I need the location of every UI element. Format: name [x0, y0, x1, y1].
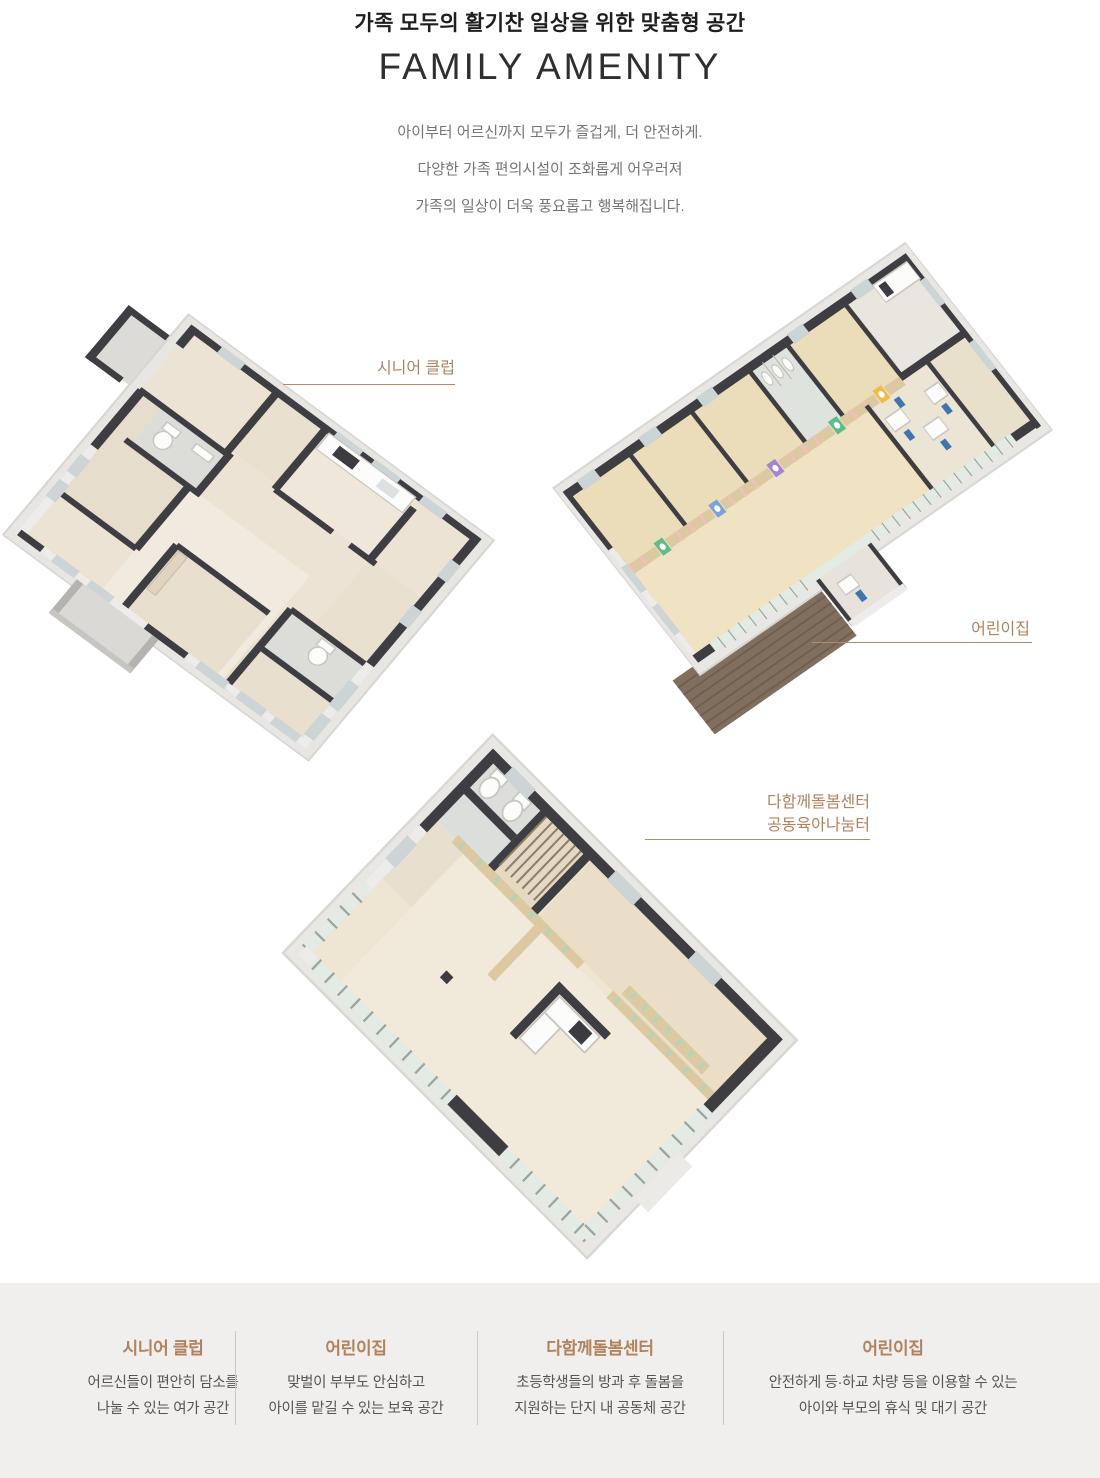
callout-daycare: 어린이집: [830, 618, 1030, 641]
footer-title: 어린이집: [718, 1339, 1068, 1359]
callout-label: 시니어 클럽: [255, 357, 455, 380]
family-amenity-page: 가족 모두의 활기찬 일상을 위한 맞춤형 공간 FAMILY AMENITY …: [0, 0, 1100, 1478]
footer-col-daycare-waiting: 어린이집 안전하게 등·하교 차량 등을 이용할 수 있는 아이와 부모의 휴식…: [718, 1283, 1068, 1478]
footer-desc-line: 맞벌이 부부도 안심하고: [235, 1370, 477, 1396]
footer-title: 다함께돌봄센터: [477, 1339, 723, 1359]
footer-col-care-center: 다함께돌봄센터 초등학생들의 방과 후 돌봄을 지원하는 단지 내 공동체 공간: [477, 1283, 723, 1478]
footer-desc: 초등학생들의 방과 후 돌봄을 지원하는 단지 내 공동체 공간: [477, 1370, 723, 1422]
footer-title: 어린이집: [235, 1339, 477, 1359]
footer-desc-line: 안전하게 등·하교 차량 등을 이용할 수 있는: [718, 1370, 1068, 1396]
floorplan-daycare: [533, 243, 1088, 734]
callout-line-senior-club: [283, 384, 455, 385]
callout-line-care-center: [645, 839, 870, 840]
footer-desc-line: 아이와 부모의 휴식 및 대기 공간: [718, 1396, 1068, 1422]
footer-col-daycare: 어린이집 맞벌이 부부도 안심하고 아이를 맡길 수 있는 보육 공간: [235, 1283, 477, 1478]
callout-line-daycare: [812, 642, 1032, 643]
footer-desc-line: 아이를 맡길 수 있는 보육 공간: [235, 1396, 477, 1422]
footer-desc: 안전하게 등·하교 차량 등을 이용할 수 있는 아이와 부모의 휴식 및 대기…: [718, 1370, 1068, 1422]
footer-desc-line: 초등학생들의 방과 후 돌봄을: [477, 1370, 723, 1396]
callout-care-center: 다함께돌봄센터 공동육아나눔터: [670, 791, 870, 837]
footer-desc-line: 지원하는 단지 내 공동체 공간: [477, 1396, 723, 1422]
floorplans-section: 시니어 클럽 어린이집 다함께돌봄센터 공동육아나눔터: [0, 0, 1100, 1290]
callout-senior-club: 시니어 클럽: [255, 357, 455, 380]
floorplans-canvas: [0, 0, 1100, 1290]
amenity-summary-footer: 시니어 클럽 어르신들이 편안히 담소를 나눌 수 있는 여가 공간 어린이집 …: [0, 1283, 1100, 1478]
footer-desc: 맞벌이 부부도 안심하고 아이를 맡길 수 있는 보육 공간: [235, 1370, 477, 1422]
callout-label: 공동육아나눔터: [670, 814, 870, 837]
callout-label: 다함께돌봄센터: [670, 791, 870, 814]
callout-label: 어린이집: [830, 618, 1030, 641]
